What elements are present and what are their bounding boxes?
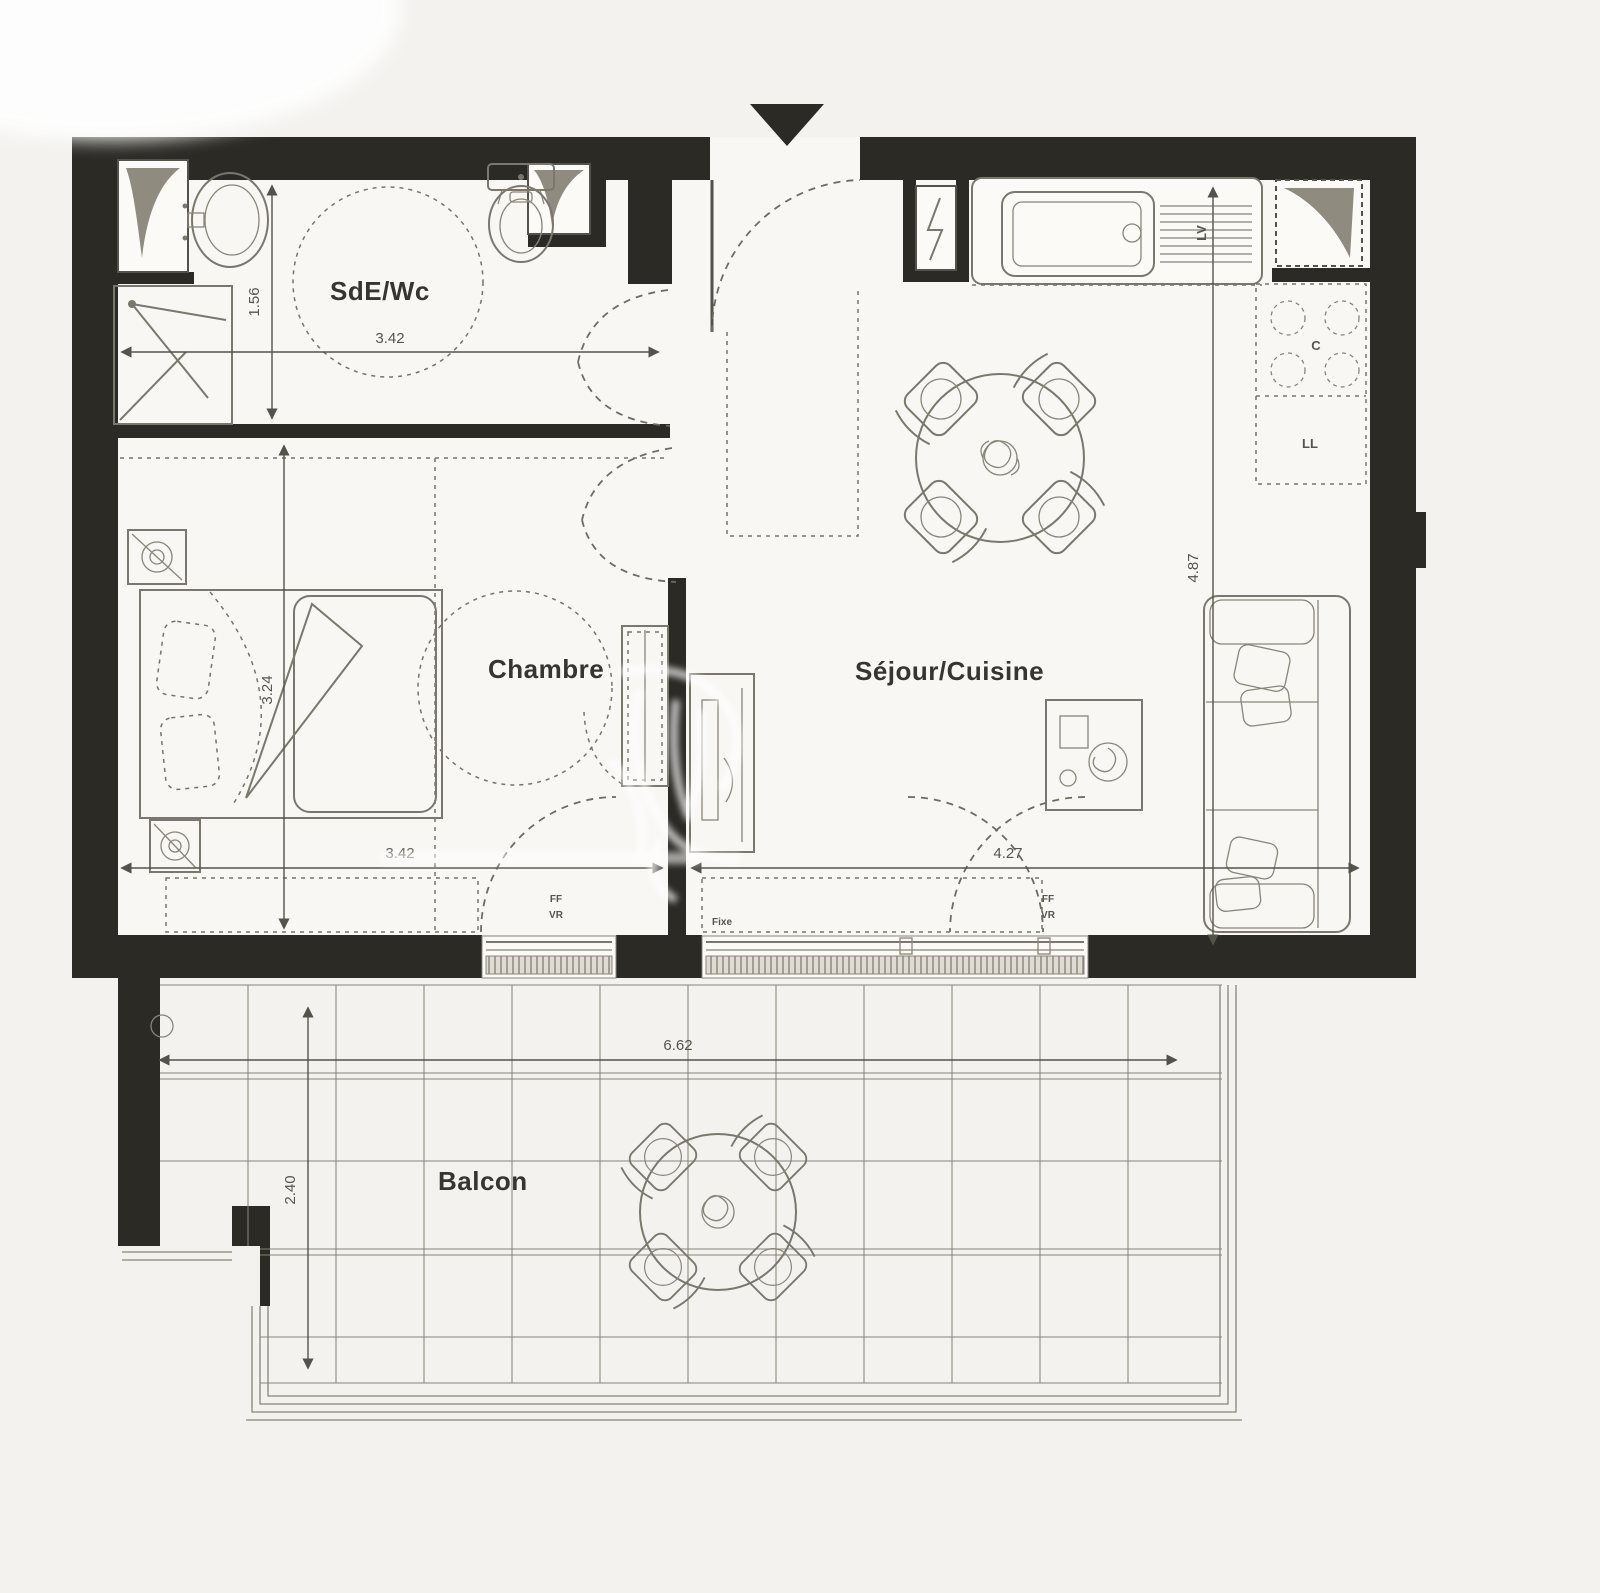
wall-elec-closet-right bbox=[956, 180, 969, 282]
dim-balcony-width: 6.62 bbox=[663, 1037, 692, 1054]
shaft-bathroom-right bbox=[528, 164, 590, 234]
wall-bathroom-hall bbox=[628, 180, 672, 284]
wall-bottom-left bbox=[72, 935, 482, 978]
window-type-label: FF bbox=[550, 894, 562, 905]
room-label-bedroom: Chambre bbox=[488, 654, 604, 684]
shaft-top-left bbox=[118, 160, 188, 272]
wall-bathroom-bedroom-divider bbox=[118, 424, 670, 438]
floorplan-drawing: C LL LV bbox=[0, 0, 1600, 1593]
dim-bedroom-depth: 3.24 bbox=[259, 675, 276, 704]
balcony-corner-cut bbox=[118, 1246, 260, 1436]
wall-bottom-right bbox=[1088, 935, 1416, 978]
wall-shaft-bath-bottom bbox=[528, 235, 592, 247]
wall-right-bump bbox=[1416, 512, 1426, 568]
dishwasher-label: LV bbox=[1194, 225, 1209, 241]
dim-bathroom-depth: 1.56 bbox=[246, 287, 263, 316]
wall-top-right bbox=[860, 137, 1416, 180]
wall-shaft-kitchen-bottom bbox=[1272, 268, 1370, 282]
wall-shaft-bath-side bbox=[590, 162, 606, 247]
cooktop-label: C bbox=[1311, 338, 1321, 353]
dim-living-depth: 4.87 bbox=[1185, 553, 1202, 582]
wall-right bbox=[1370, 137, 1416, 978]
wall-elec-closet-left bbox=[903, 180, 916, 282]
electrical-panel bbox=[916, 186, 956, 270]
washer-label: LL bbox=[1302, 436, 1318, 451]
wall-elec-closet-bottom bbox=[903, 270, 969, 282]
room-label-living: Séjour/Cuisine bbox=[855, 656, 1044, 686]
room-label-balcony: Balcon bbox=[438, 1166, 528, 1196]
window-type-label: FF bbox=[1042, 894, 1054, 905]
shutter-label: VR bbox=[549, 910, 564, 921]
wall-shaft-tl-bottom bbox=[116, 272, 194, 284]
dim-balcony-depth: 2.40 bbox=[282, 1175, 299, 1204]
shaft-kitchen-corner bbox=[1276, 180, 1362, 266]
shutter-label: VR bbox=[1041, 910, 1056, 921]
wall-left bbox=[72, 137, 118, 978]
room-label-bathroom: SdE/Wc bbox=[330, 276, 430, 306]
fixed-pane-label: Fixe bbox=[712, 917, 732, 928]
dim-bathroom-width: 3.42 bbox=[375, 330, 404, 347]
kitchen-counter bbox=[972, 178, 1262, 284]
dim-living-width: 4.27 bbox=[993, 845, 1022, 862]
floorplan-scan: C LL LV bbox=[0, 0, 1600, 1593]
wall-bottom-center-pillar bbox=[616, 935, 702, 978]
